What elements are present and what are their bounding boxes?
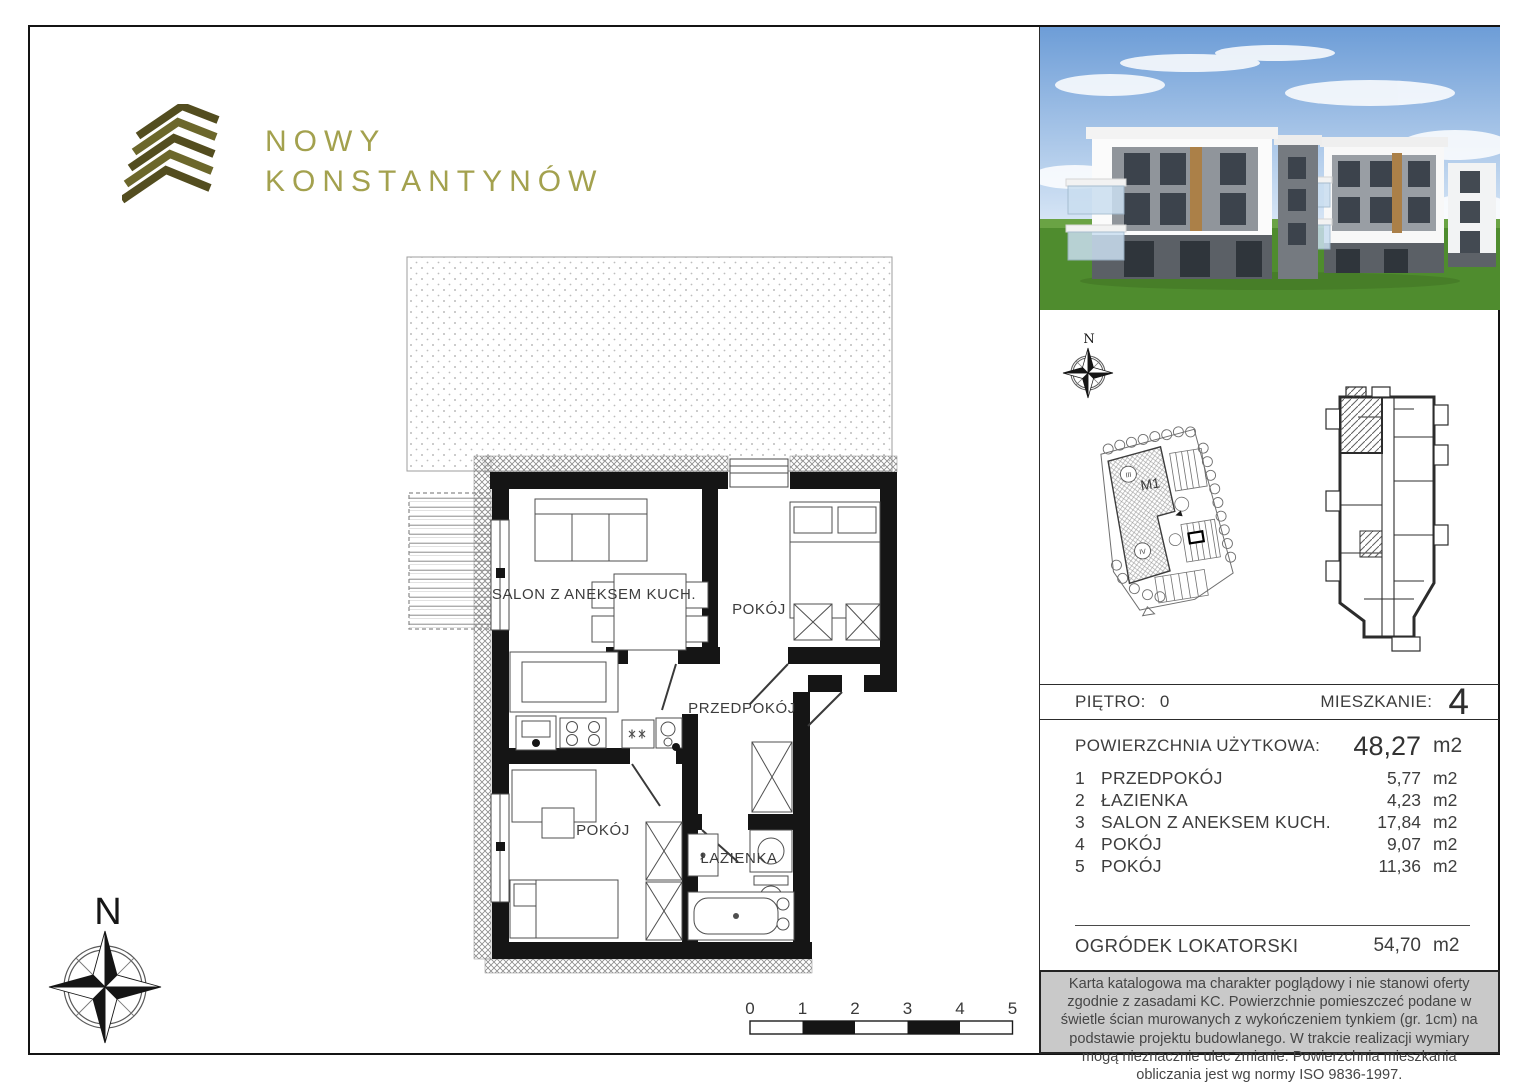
room-number: 3 — [1075, 812, 1101, 833]
room-unit: m2 — [1433, 834, 1469, 855]
room-number: 2 — [1075, 790, 1101, 811]
room-list: 1 PRZEDPOKÓJ 5,77 m2 2 ŁAZIENKA 4,23 m2 … — [1040, 767, 1499, 877]
site-building-label: M1 — [1139, 474, 1161, 493]
garden-area — [407, 257, 892, 471]
compass-rose: N — [49, 891, 161, 1043]
floor-plan-drawing: SALON Z ANEKSEM KUCH. POKÓJ PRZEDPOKÓJ P… — [30, 27, 1039, 1052]
scale-tick-0: 0 — [745, 999, 754, 1018]
room-name: ŁAZIENKA — [1101, 790, 1188, 811]
room-row: 3 SALON Z ANEKSEM KUCH. 17,84 m2 — [1040, 811, 1499, 833]
site-unit-iii-label: III — [1125, 472, 1132, 480]
scale-bar: 0 1 2 3 4 5 — [745, 999, 1017, 1034]
floor-value: 0 — [1160, 692, 1169, 712]
room-unit: m2 — [1433, 812, 1469, 833]
label-pokoj-bottom: POKÓJ — [576, 822, 630, 839]
usable-area-label: POWIERZCHNIA UŻYTKOWA: — [1075, 736, 1320, 756]
site-compass-icon: N — [1050, 327, 1126, 411]
apartment-number: 4 — [1448, 684, 1469, 720]
apartment-label: MIESZKANIE: — [1320, 692, 1432, 712]
room-number: 5 — [1075, 856, 1101, 877]
floor-apartment-row: PIĘTRO: 0 MIESZKANIE: 4 — [1040, 684, 1499, 720]
catalog-card-page: NOWY KONSTANTYNÓW — [28, 25, 1500, 1055]
label-salon: SALON Z ANEKSEM KUCH. — [492, 586, 696, 603]
scale-tick-5: 5 — [1008, 999, 1017, 1018]
garden-unit: m2 — [1433, 935, 1469, 957]
room-unit: m2 — [1433, 856, 1469, 877]
compass-n-label: N — [94, 891, 121, 933]
room-unit: m2 — [1433, 768, 1469, 789]
scale-tick-2: 2 — [850, 999, 859, 1018]
room-area: 5,77 — [1387, 768, 1421, 789]
room-number: 4 — [1075, 834, 1101, 855]
usable-area-value: 48,27 — [1353, 731, 1421, 762]
room-area: 11,36 — [1379, 856, 1422, 877]
garden-label: OGRÓDEK LOKATORSKI — [1075, 935, 1298, 957]
room-name: SALON Z ANEKSEM KUCH. — [1101, 812, 1331, 833]
room-area: 17,84 — [1377, 812, 1421, 833]
room-row: 4 POKÓJ 9,07 m2 — [1040, 833, 1499, 855]
usable-area-unit: m2 — [1433, 734, 1469, 758]
label-pokoj-top: POKÓJ — [732, 601, 786, 618]
site-compass-n-label: N — [1083, 332, 1094, 347]
details-panel: N — [1039, 27, 1499, 1052]
floor-label: PIĘTRO: — [1075, 692, 1146, 712]
scale-tick-1: 1 — [798, 999, 807, 1018]
scale-tick-3: 3 — [903, 999, 912, 1018]
disclaimer-text: Karta katalogowa ma charakter poglądowy … — [1039, 970, 1501, 1054]
key-plan — [1302, 385, 1482, 670]
room-unit: m2 — [1433, 790, 1469, 811]
room-row: 5 POKÓJ 11,36 m2 — [1040, 855, 1499, 877]
key-plan-highlighted-unit — [1340, 397, 1382, 453]
room-area: 4,23 — [1387, 790, 1421, 811]
room-name: POKÓJ — [1101, 834, 1162, 855]
room-name: PRZEDPOKÓJ — [1101, 768, 1223, 789]
room-row: 1 PRZEDPOKÓJ 5,77 m2 — [1040, 767, 1499, 789]
usable-area-row: POWIERZCHNIA UŻYTKOWA: 48,27 m2 — [1040, 729, 1499, 763]
room-row: 2 ŁAZIENKA 4,23 m2 — [1040, 789, 1499, 811]
site-selected-marker — [1188, 531, 1203, 543]
label-lazienka: ŁAZIENKA — [700, 850, 777, 867]
scale-tick-4: 4 — [955, 999, 964, 1018]
site-plan: III IV M1 — [1080, 425, 1250, 620]
garden-separator — [1075, 925, 1470, 926]
buildings — [1066, 127, 1496, 279]
garden-value: 54,70 — [1373, 935, 1421, 957]
room-number: 1 — [1075, 768, 1101, 789]
garden-row: OGRÓDEK LOKATORSKI 54,70 m2 — [1040, 931, 1499, 961]
label-przedpokoj: PRZEDPOKÓJ — [688, 700, 796, 717]
building-render-image — [1040, 27, 1500, 310]
room-name: POKÓJ — [1101, 856, 1162, 877]
room-area: 9,07 — [1387, 834, 1421, 855]
